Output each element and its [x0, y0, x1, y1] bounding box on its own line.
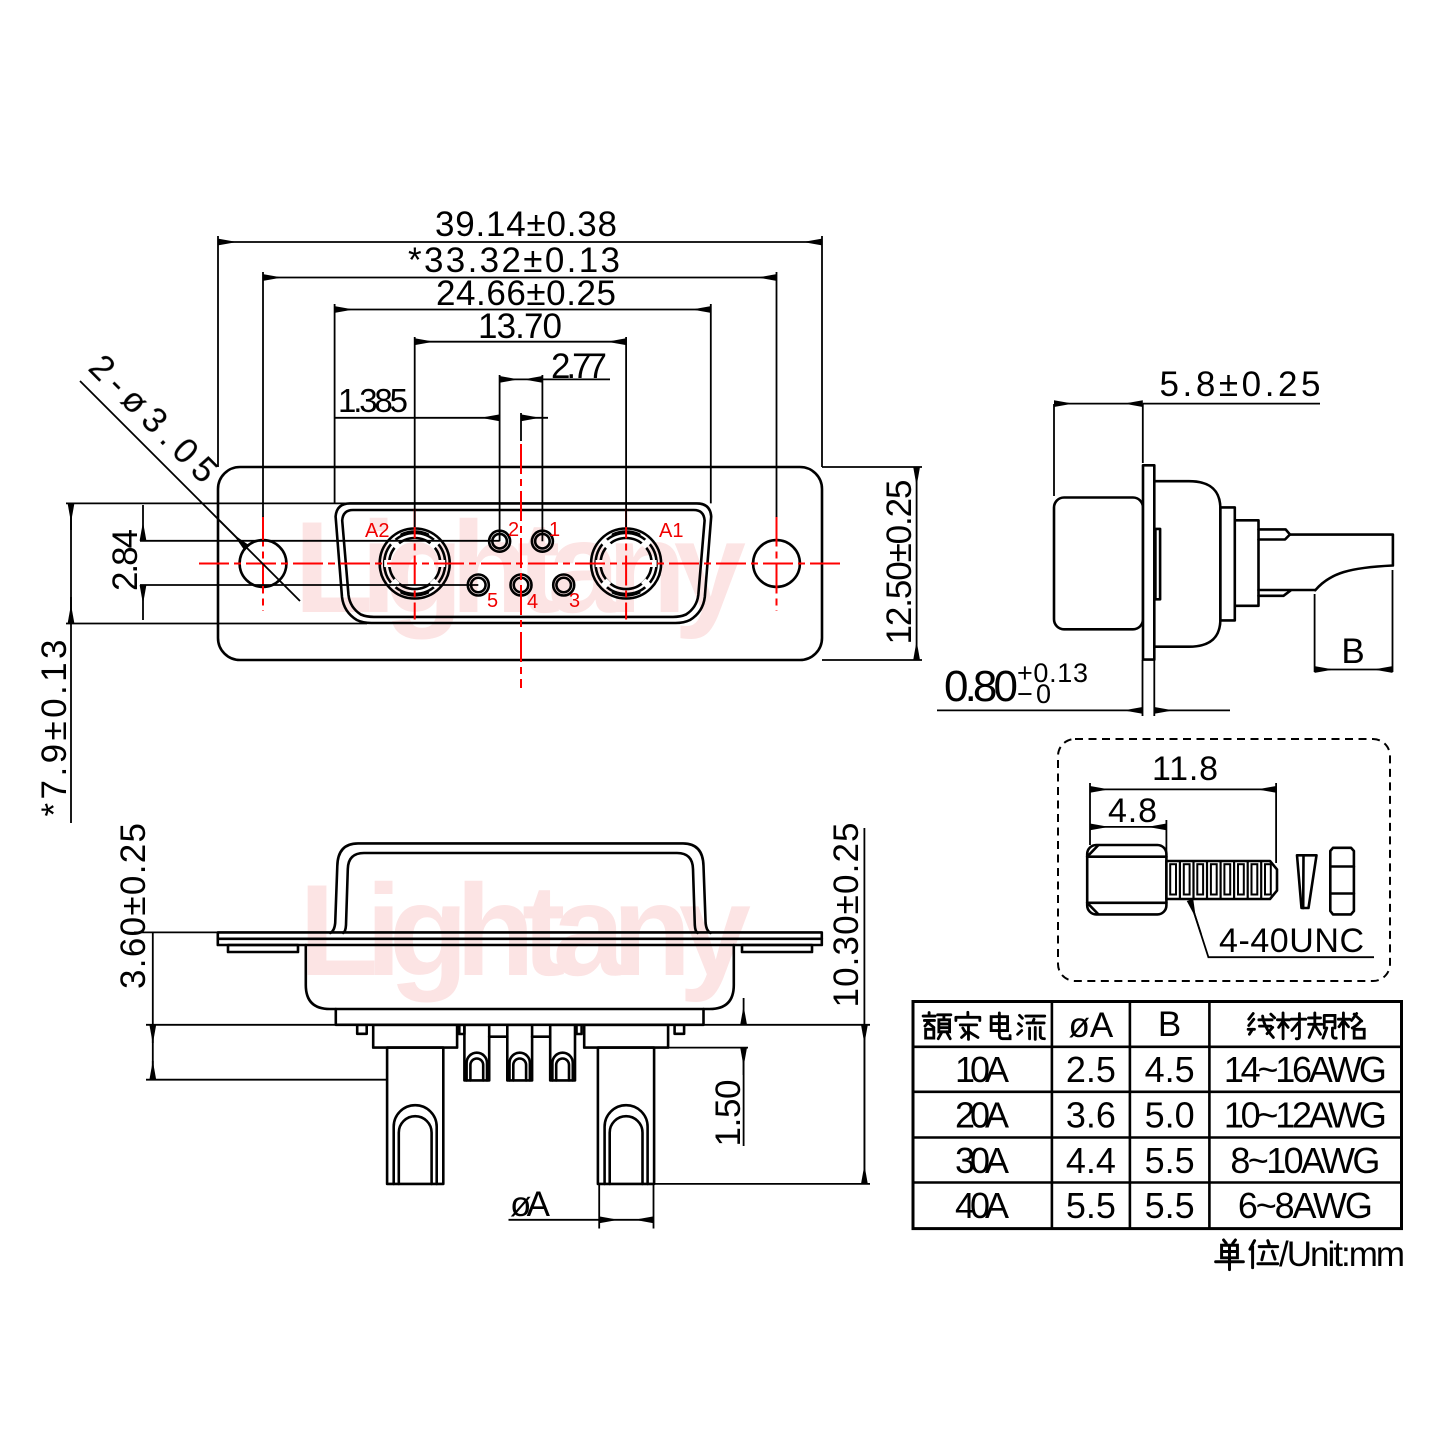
svg-text:11.8: 11.8	[1152, 750, 1218, 788]
svg-text:2.84: 2.84	[106, 529, 145, 591]
svg-text:40A: 40A	[955, 1185, 1009, 1226]
svg-text:3.60±0.25: 3.60±0.25	[114, 823, 153, 989]
svg-text:10~12AWG: 10~12AWG	[1224, 1095, 1387, 1136]
svg-text:5: 5	[487, 590, 498, 612]
svg-text:2.5: 2.5	[1066, 1049, 1116, 1090]
svg-text:8~10AWG: 8~10AWG	[1230, 1140, 1380, 1181]
svg-text:10.30±0.25: 10.30±0.25	[827, 823, 866, 1008]
svg-text:5.0: 5.0	[1145, 1095, 1195, 1136]
svg-text:1.385: 1.385	[338, 382, 408, 419]
svg-text:0.80: 0.80	[944, 662, 1018, 711]
svg-text:/Unit:mm: /Unit:mm	[1279, 1235, 1405, 1274]
svg-text:14~16AWG: 14~16AWG	[1224, 1049, 1387, 1090]
svg-text:Lightany: Lightany	[299, 857, 751, 1003]
svg-text:B: B	[1158, 1005, 1181, 1044]
svg-text:øA: øA	[1069, 1006, 1114, 1045]
svg-text:4.8: 4.8	[1108, 792, 1157, 830]
svg-text:A2: A2	[365, 520, 389, 542]
svg-text:6~8AWG: 6~8AWG	[1238, 1185, 1373, 1226]
svg-text:3: 3	[569, 590, 580, 612]
svg-text:2: 2	[508, 519, 519, 541]
svg-text:4.5: 4.5	[1145, 1049, 1195, 1090]
svg-text:4.4: 4.4	[1066, 1140, 1116, 1181]
svg-text:1.50: 1.50	[709, 1080, 748, 1147]
svg-text:13.70: 13.70	[478, 307, 562, 346]
svg-text:4-40UNC: 4-40UNC	[1219, 922, 1364, 960]
svg-text:5.5: 5.5	[1145, 1185, 1195, 1226]
svg-text:5.5: 5.5	[1145, 1140, 1195, 1181]
svg-text:3.6: 3.6	[1066, 1095, 1116, 1136]
svg-text:5.5: 5.5	[1066, 1185, 1116, 1226]
svg-text:4: 4	[527, 591, 538, 613]
svg-text:10A: 10A	[955, 1049, 1009, 1090]
svg-text:12.50±0.25: 12.50±0.25	[880, 480, 919, 645]
svg-text:øA: øA	[510, 1185, 551, 1224]
svg-text:20A: 20A	[955, 1095, 1009, 1136]
svg-text:1: 1	[549, 519, 560, 541]
svg-text:B: B	[1341, 632, 1364, 671]
svg-text:A1: A1	[659, 520, 683, 542]
svg-text:30A: 30A	[955, 1140, 1009, 1181]
svg-text:*7.9±0.13: *7.9±0.13	[35, 640, 74, 817]
svg-text:39.14±0.38: 39.14±0.38	[435, 205, 617, 244]
